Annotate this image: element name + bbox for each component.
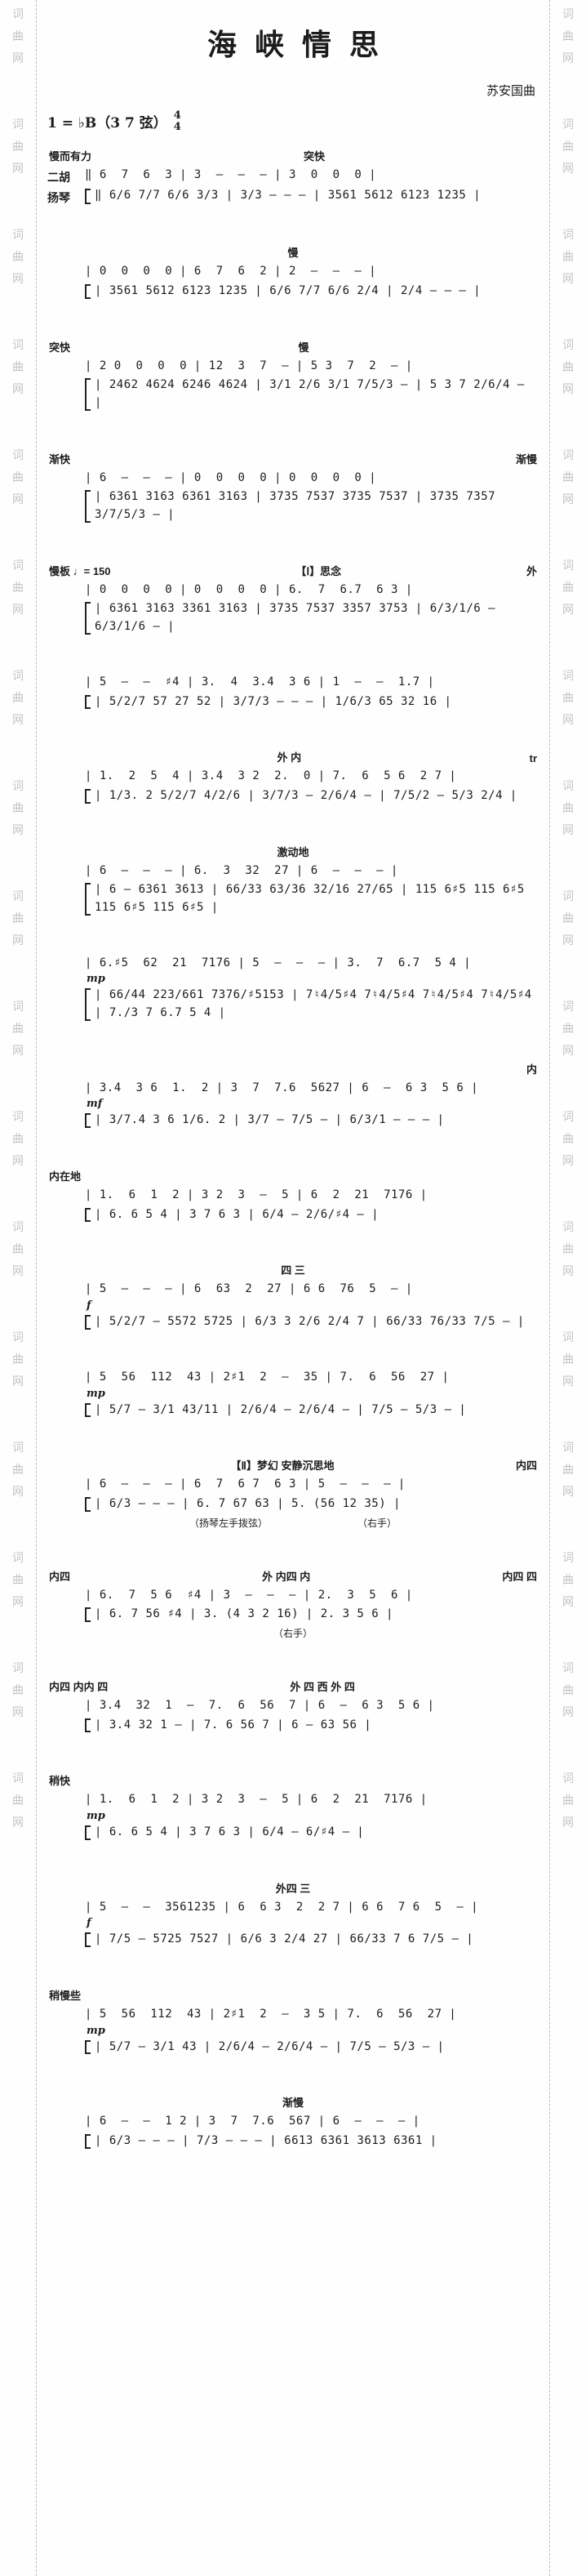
- erhu-part-label: [47, 862, 85, 865]
- yangqin-notes: ∣ 2462 4624 6246 4624 ∣ 3/1 2/6 3/1 7/5/…: [95, 377, 539, 412]
- yangqin-line: 扬琴‖ 6/6 7/7 6/6 3/3 ∣ 3/3 – – – ∣ 3561 5…: [47, 187, 539, 206]
- erhu-part-label: [47, 768, 85, 770]
- yangqin-notes-stack: ∣ 6. 6 5 4 ∣ 3 7 6 3 ∣ 6/4 – 2/6/♯4 – ∣: [95, 1206, 539, 1224]
- erhu-line: ∣ 6 – – – ∣ 0 0 0 0 ∣ 0 0 0 0 ∣: [47, 470, 539, 488]
- system-7: 外 内tr∣ 1. 2 5 4 ∣ 3.4 3 2 2. 0 ∣ 7. 6 5 …: [47, 748, 539, 804]
- erhu-part-label: [47, 1281, 85, 1283]
- erhu-notes: ∣ 5 56 112 43 ∣ 2♯1 2 – 3 5 ∣ 7. 6 56 27…: [85, 2006, 539, 2024]
- erhu-notes: ∣ 5 – – – ∣ 6 63 2 27 ∣ 6 6 76 5 – ∣: [85, 1281, 539, 1299]
- system-16: 内四 内内 四外 四 西 外 四∣ 3.4 32 1 – 7. 6 56 7 ∣…: [47, 1678, 539, 1734]
- yangqin-notes: ∣ 6 – 6361 3613 ∣ 66/33 63/36 32/16 27/6…: [95, 881, 539, 916]
- section-mark: 【Ⅰ】思念: [111, 563, 526, 578]
- tempo-mark: 慢而有力: [49, 148, 91, 163]
- yangqin-notes: ∣ 6361 3163 3361 3163 ∣ 3735 7537 3357 3…: [95, 600, 539, 635]
- system-17: 稍快∣ 1. 6 1 2 ∣ 3 2 3 – 5 ∣ 6 2 21 7176 ∣…: [47, 1772, 539, 1841]
- system-5: 慢板 ♩= 150【Ⅰ】思念外∣ 0 0 0 0 ∣ 0 0 0 0 ∣ 6. …: [47, 562, 539, 636]
- yangqin-part-label: [47, 1931, 85, 1933]
- music-systems: 慢而有力突快二胡‖ 6 7 6 3 ∣ 3 – – – ∣ 3 0 0 0 ∣扬…: [47, 147, 539, 2150]
- erhu-part-label: [47, 1369, 85, 1371]
- tempo-annotation-row: 外四 三: [47, 1879, 539, 1897]
- yangqin-part-label: [47, 693, 85, 696]
- page-title: 海峡情思: [47, 21, 539, 64]
- yangqin-bracket: [85, 1403, 91, 1418]
- yangqin-bracket: [85, 284, 91, 299]
- key-text: 1 = ♭B（3 7 弦）: [47, 111, 167, 131]
- system-4: 渐快渐慢∣ 6 – – – ∣ 0 0 0 0 ∣ 0 0 0 0 ∣∣ 636…: [47, 450, 539, 524]
- tempo-annotation-row: 渐快渐慢: [47, 450, 539, 468]
- tempo-annotation-row: 内在地: [47, 1167, 539, 1185]
- string-finger-mark: 外: [526, 563, 537, 578]
- yangqin-notes: ∣ 6. 6 5 4 ∣ 3 7 6 3 ∣ 6/4 – 2/6/♯4 – ∣: [95, 1206, 539, 1224]
- yangqin-line: ∣ 6. 7 56 ♯4 ∣ 3. (4 3 2 16) ∣ 2. 3 5 6 …: [47, 1606, 539, 1624]
- erhu-part-label: [47, 2006, 85, 2008]
- yangqin-notes: ∣ 6361 3163 6361 3163 ∣ 3735 7537 3735 7…: [95, 488, 539, 524]
- meter-denominator: 4: [174, 122, 181, 133]
- yangqin-part-label: [47, 488, 85, 491]
- tempo-annotation-row: 稍慢些: [47, 1986, 539, 2004]
- yangqin-part-label: [47, 787, 85, 790]
- tempo-annotation-row: 渐慢: [47, 2093, 539, 2111]
- erhu-notes: ∣ 1. 2 5 4 ∣ 3.4 3 2 2. 0 ∣ 7. 6 5 6 2 7…: [85, 768, 539, 786]
- dynamic-mark: mp: [87, 1810, 539, 1822]
- erhu-line: ∣ 5 56 112 43 ∣ 2♯1 2 – 3 5 ∣ 7. 6 56 27…: [47, 2006, 539, 2024]
- tempo-annotation-row: 四 三: [47, 1261, 539, 1279]
- string-finger-mark: 内: [526, 1061, 537, 1076]
- system-19: 稍慢些∣ 5 56 112 43 ∣ 2♯1 2 – 3 5 ∣ 7. 6 56…: [47, 1986, 539, 2056]
- tempo-mark: 内四: [49, 1568, 70, 1584]
- yangqin-line: ∣ 7/5 – 5725 7527 ∣ 6/6 3 2/4 27 ∣ 66/33…: [47, 1931, 539, 1949]
- erhu-part-label: [47, 470, 85, 472]
- yangqin-notes-stack: ∣ 3/7.4 3 6 1/6. 2 ∣ 3/7 – 7/5 – ∣ 6/3/1…: [95, 1112, 539, 1130]
- yangqin-line: ∣ 6 – 6361 3613 ∣ 66/33 63/36 32/16 27/6…: [47, 881, 539, 916]
- yangqin-notes-stack: ∣ 6/3 – – – ∣ 7/3 – – – ∣ 6613 6361 3613…: [95, 2133, 539, 2150]
- tempo-annotation-row: 慢: [47, 243, 539, 261]
- score-sheet: 海峡情思 苏安国曲 1 = ♭B（3 7 弦） 4 4 慢而有力突快二胡‖ 6 …: [47, 0, 539, 2188]
- tempo-mark: 内四 内内 四: [49, 1678, 108, 1694]
- string-finger-mark: 内四 四: [502, 1568, 537, 1584]
- erhu-part-label: [47, 674, 85, 676]
- erhu-notes: ∣ 1. 6 1 2 ∣ 3 2 3 – 5 ∣ 6 2 21 7176 ∣: [85, 1187, 539, 1205]
- yangqin-part-label: [47, 987, 85, 989]
- dynamic-mark: f: [87, 1917, 539, 1929]
- yangqin-part-label: [47, 1313, 85, 1316]
- erhu-notes: ∣ 5 56 112 43 ∣ 2♯1 2 – 35 ∣ 7. 6 56 27 …: [85, 1369, 539, 1387]
- system-20: 渐慢∣ 6 – – 1 2 ∣ 3 7 7.6 567 ∣ 6 – – – ∣∣…: [47, 2093, 539, 2150]
- erhu-line: ∣ 5 56 112 43 ∣ 2♯1 2 – 35 ∣ 7. 6 56 27 …: [47, 1369, 539, 1387]
- section-mark: 突快: [91, 148, 537, 163]
- time-signature: 4 4: [174, 110, 181, 132]
- yangqin-bracket: [85, 1497, 91, 1512]
- yangqin-bracket: [85, 1208, 91, 1223]
- performance-note: （右手）: [357, 1516, 397, 1530]
- yangqin-line: ∣ 2462 4624 6246 4624 ∣ 3/1 2/6 3/1 7/5/…: [47, 377, 539, 412]
- yangqin-part-label: [47, 1606, 85, 1608]
- yangqin-line: ∣ 6361 3163 3361 3163 ∣ 3735 7537 3357 3…: [47, 600, 539, 635]
- yangqin-bracket: [85, 189, 91, 204]
- yangqin-line: ∣ 1/3. 2 5/2/7 4/2/6 ∣ 3/7/3 – 2/6/4 – ∣…: [47, 787, 539, 805]
- yangqin-notes: ∣ 6. 6 5 4 ∣ 3 7 6 3 ∣ 6/4 – 6/♯4 – ∣: [95, 1824, 539, 1842]
- tempo-annotation-row: 突快慢: [47, 338, 539, 356]
- yangqin-notes-stack: ∣ 3561 5612 6123 1235 ∣ 6/6 7/7 6/6 2/4 …: [95, 283, 539, 301]
- yangqin-part-label: [47, 1717, 85, 1719]
- erhu-part-label: [47, 1476, 85, 1478]
- erhu-notes: ∣ 0 0 0 0 ∣ 0 0 0 0 ∣ 6. 7 6.7 6 3 ∣: [85, 582, 539, 599]
- yangqin-bracket: [85, 1607, 91, 1622]
- erhu-line: ∣ 0 0 0 0 ∣ 0 0 0 0 ∣ 6. 7 6.7 6 3 ∣: [47, 582, 539, 599]
- erhu-notes: ∣ 5 – – ♯4 ∣ 3. 4 3.4 3 6 ∣ 1 – – 1.7 ∣: [85, 674, 539, 692]
- yangqin-part-label: [47, 1402, 85, 1404]
- yangqin-bracket: [85, 789, 91, 804]
- yangqin-notes: ∣ 1/3. 2 5/2/7 4/2/6 ∣ 3/7/3 – 2/6/4 – ∣…: [95, 787, 539, 805]
- yangqin-notes-stack: ∣ 1/3. 2 5/2/7 4/2/6 ∣ 3/7/3 – 2/6/4 – ∣…: [95, 787, 539, 805]
- erhu-line: ∣ 3.4 3 6 1. 2 ∣ 3 7 7.6 5627 ∣ 6 – 6 3 …: [47, 1080, 539, 1098]
- yangqin-notes: ‖ 6/6 7/7 6/6 3/3 ∣ 3/3 – – – ∣ 3561 561…: [95, 187, 539, 205]
- erhu-part-label: [47, 358, 85, 360]
- erhu-notes: ∣ 6 – – – ∣ 6. 3 32 27 ∣ 6 – – – ∣: [85, 862, 539, 880]
- tempo-mark: 突快: [49, 339, 70, 354]
- tempo-mark: 渐快: [49, 451, 70, 466]
- yangqin-part-label: [47, 1206, 85, 1209]
- tempo-annotation-row: 慢而有力突快: [47, 147, 539, 165]
- yangqin-bracket: [85, 2040, 91, 2055]
- yangqin-notes-stack: ∣ 5/7 – 3/1 43/11 ∣ 2/6/4 – 2/6/4 – ∣ 7/…: [95, 1402, 539, 1419]
- yangqin-bracket: [85, 378, 91, 410]
- section-mark: 【Ⅱ】梦幻 安静沉思地: [49, 1457, 516, 1473]
- yangqin-line: ∣ 5/7 – 3/1 43/11 ∣ 2/6/4 – 2/6/4 – ∣ 7/…: [47, 1402, 539, 1419]
- system-15: 内四外 内四 内内四 四∣ 6. 7 5 6 ♯4 ∣ 3 – – – ∣ 2.…: [47, 1567, 539, 1640]
- watermark-left: 词 曲 网 词 曲 网 词 曲 网 词 曲 网 词 曲 网 词 曲 网 词 曲 …: [0, 0, 37, 2576]
- yangqin-notes-stack: ∣ 6/3 – – – ∣ 6. 7 67 63 ∣ 5. (56 12 35)…: [95, 1495, 539, 1513]
- yangqin-notes: ∣ 5/2/7 57 27 52 ∣ 3/7/3 – – – ∣ 1/6/3 6…: [95, 693, 539, 711]
- yangqin-bracket: [85, 1932, 91, 1947]
- yangqin-line: ∣ 6/3 – – – ∣ 6. 7 67 63 ∣ 5. (56 12 35)…: [47, 1495, 539, 1513]
- yangqin-notes: ∣ 7/5 – 5725 7527 ∣ 6/6 3 2/4 27 ∣ 66/33…: [95, 1931, 539, 1949]
- system-9: ∣ 6.♯5 62 21 7176 ∣ 5 – – – ∣ 3. 7 6.7 5…: [47, 955, 539, 1023]
- yangqin-notes-stack: ∣ 6361 3163 6361 3163 ∣ 3735 7537 3735 7…: [95, 488, 539, 524]
- yangqin-line: ∣ 3/7.4 3 6 1/6. 2 ∣ 3/7 – 7/5 – ∣ 6/3/1…: [47, 1112, 539, 1130]
- erhu-part-label: [47, 582, 85, 584]
- tempo-annotation-row: 内四 内内 四外 四 西 外 四: [47, 1678, 539, 1696]
- watermark-right: 词 曲 网 词 曲 网 词 曲 网 词 曲 网 词 曲 网 词 曲 网 词 曲 …: [549, 0, 586, 2576]
- composer-credit: 苏安国曲: [47, 82, 539, 99]
- system-13: ∣ 5 56 112 43 ∣ 2♯1 2 – 35 ∣ 7. 6 56 27 …: [47, 1369, 539, 1419]
- erhu-notes: ∣ 3.4 3 6 1. 2 ∣ 3 7 7.6 5627 ∣ 6 – 6 3 …: [85, 1080, 539, 1098]
- section-mark: 外 四 西 外 四: [108, 1678, 537, 1694]
- yangqin-notes-stack: ∣ 6 – 6361 3613 ∣ 66/33 63/36 32/16 27/6…: [95, 881, 539, 916]
- system-6: ∣ 5 – – ♯4 ∣ 3. 4 3.4 3 6 ∣ 1 – – 1.7 ∣∣…: [47, 674, 539, 711]
- performance-note-row: （扬琴左手拨弦）（右手）: [47, 1516, 539, 1530]
- yangqin-part-label: [47, 881, 85, 884]
- erhu-notes: ∣ 3.4 32 1 – 7. 6 56 7 ∣ 6 – 6 3 5 6 ∣: [85, 1697, 539, 1715]
- yangqin-notes-stack: ∣ 5/2/7 57 27 52 ∣ 3/7/3 – – – ∣ 1/6/3 6…: [95, 693, 539, 711]
- yangqin-line: ∣ 3561 5612 6123 1235 ∣ 6/6 7/7 6/6 2/4 …: [47, 283, 539, 301]
- tempo-annotation-row: 慢板 ♩= 150【Ⅰ】思念外: [47, 562, 539, 580]
- yangqin-bracket: [85, 1718, 91, 1733]
- yangqin-notes-stack: ∣ 6. 7 56 ♯4 ∣ 3. (4 3 2 16) ∣ 2. 3 5 6 …: [95, 1606, 539, 1624]
- yangqin-notes: ∣ 6/3 – – – ∣ 6. 7 67 63 ∣ 5. (56 12 35)…: [95, 1495, 539, 1513]
- section-mark: 渐慢: [49, 2094, 537, 2110]
- yangqin-line: ∣ 6/3 – – – ∣ 7/3 – – – ∣ 6613 6361 3613…: [47, 2133, 539, 2150]
- section-mark: 慢: [49, 244, 537, 260]
- string-finger-mark: 内四: [516, 1457, 537, 1473]
- yangqin-line: ∣ 6361 3163 6361 3163 ∣ 3735 7537 3735 7…: [47, 488, 539, 524]
- tempo-annotation-row: 稍快: [47, 1772, 539, 1789]
- erhu-line: ∣ 1. 2 5 4 ∣ 3.4 3 2 2. 0 ∣ 7. 6 5 6 2 7…: [47, 768, 539, 786]
- dynamic-mark: mp: [87, 2025, 539, 2037]
- yangqin-part-label: [47, 377, 85, 379]
- performance-note: （右手）: [273, 1626, 313, 1640]
- system-18: 外四 三∣ 5 – – 3561235 ∣ 6 6 3 2 2 7 ∣ 6 6 …: [47, 1879, 539, 1949]
- yangqin-bracket: [85, 1315, 91, 1330]
- tempo-annotation-row: 内: [47, 1060, 539, 1078]
- yangqin-notes: ∣ 5/7 – 3/1 43/11 ∣ 2/6/4 – 2/6/4 – ∣ 7/…: [95, 1402, 539, 1419]
- erhu-notes: ∣ 6 – – – ∣ 0 0 0 0 ∣ 0 0 0 0 ∣: [85, 470, 539, 488]
- yangqin-line: ∣ 5/2/7 – 5572 5725 ∣ 6/3 3 2/6 2/4 7 ∣ …: [47, 1313, 539, 1331]
- section-mark: 外 内四 内: [70, 1568, 502, 1584]
- erhu-line: ∣ 5 – – – ∣ 6 63 2 27 ∣ 6 6 76 5 – ∣: [47, 1281, 539, 1299]
- yangqin-part-label: [47, 1112, 85, 1114]
- performance-note: （扬琴左手拨弦）: [189, 1516, 268, 1530]
- yangqin-bracket: [85, 695, 91, 710]
- yangqin-line: ∣ 6. 6 5 4 ∣ 3 7 6 3 ∣ 6/4 – 2/6/♯4 – ∣: [47, 1206, 539, 1224]
- yangqin-part-label: [47, 1824, 85, 1826]
- erhu-part-label: [47, 1080, 85, 1082]
- yangqin-notes-stack: ∣ 2462 4624 6246 4624 ∣ 3/1 2/6 3/1 7/5/…: [95, 377, 539, 412]
- yangqin-notes-stack: ∣ 5/7 – 3/1 43 ∣ 2/6/4 – 2/6/4 – ∣ 7/5 –…: [95, 2039, 539, 2057]
- erhu-line: ∣ 6 – – – ∣ 6 7 6 7 6 3 ∣ 5 – – – ∣: [47, 1476, 539, 1494]
- erhu-part-label: [47, 955, 85, 957]
- yangqin-part-label: [47, 600, 85, 603]
- erhu-notes: ∣ 6. 7 5 6 ♯4 ∣ 3 – – – ∣ 2. 3 5 6 ∣: [85, 1587, 539, 1605]
- system-8: 激动地∣ 6 – – – ∣ 6. 3 32 27 ∣ 6 – – – ∣∣ 6…: [47, 843, 539, 917]
- erhu-notes: ∣ 2 0 0 0 0 ∣ 12 3 7 – ∣ 5 3 7 2 – ∣: [85, 358, 539, 376]
- erhu-line: ∣ 5 – – 3561235 ∣ 6 6 3 2 2 7 ∣ 6 6 7 6 …: [47, 1899, 539, 1917]
- yangqin-line: ∣ 6. 6 5 4 ∣ 3 7 6 3 ∣ 6/4 – 6/♯4 – ∣: [47, 1824, 539, 1842]
- erhu-line: ∣ 1. 6 1 2 ∣ 3 2 3 – 5 ∣ 6 2 21 7176 ∣: [47, 1791, 539, 1809]
- erhu-part-label: [47, 1697, 85, 1700]
- yangqin-notes-stack: ∣ 5/2/7 – 5572 5725 ∣ 6/3 3 2/6 2/4 7 ∣ …: [95, 1313, 539, 1331]
- section-mark: 慢: [70, 339, 537, 354]
- meter-numerator: 4: [174, 110, 181, 122]
- tempo-mark: 稍慢些: [49, 1987, 81, 2003]
- tempo-annotation-row: 内四外 内四 内内四 四: [47, 1567, 539, 1585]
- yangqin-bracket: [85, 490, 91, 522]
- system-2: 慢∣ 0 0 0 0 ∣ 6 7 6 2 ∣ 2 – – – ∣∣ 3561 5…: [47, 243, 539, 300]
- erhu-notes: ∣ 0 0 0 0 ∣ 6 7 6 2 ∣ 2 – – – ∣: [85, 263, 539, 281]
- erhu-line: ∣ 6.♯5 62 21 7176 ∣ 5 – – – ∣ 3. 7 6.7 5…: [47, 955, 539, 973]
- tempo-annotation-row: 【Ⅱ】梦幻 安静沉思地内四: [47, 1456, 539, 1474]
- erhu-notes: ∣ 6 – – 1 2 ∣ 3 7 7.6 567 ∣ 6 – – – ∣: [85, 2113, 539, 2131]
- tempo-mark: 内在地: [49, 1168, 81, 1183]
- yangqin-bracket: [85, 988, 91, 1020]
- erhu-line: ∣ 3.4 32 1 – 7. 6 56 7 ∣ 6 – 6 3 5 6 ∣: [47, 1697, 539, 1715]
- system-1: 慢而有力突快二胡‖ 6 7 6 3 ∣ 3 – – – ∣ 3 0 0 0 ∣扬…: [47, 147, 539, 206]
- erhu-notes: ∣ 6.♯5 62 21 7176 ∣ 5 – – – ∣ 3. 7 6.7 5…: [85, 955, 539, 973]
- yangqin-notes: ∣ 3561 5612 6123 1235 ∣ 6/6 7/7 6/6 2/4 …: [95, 283, 539, 301]
- erhu-part-label: [47, 2113, 85, 2115]
- yangqin-bracket: [85, 1113, 91, 1128]
- tempo-annotation-row: 激动地: [47, 843, 539, 861]
- tempo-mark: 慢板 ♩= 150: [49, 563, 111, 578]
- section-mark: 外 内: [49, 749, 530, 764]
- section-mark: 四 三: [49, 1262, 537, 1277]
- yangqin-part-label: [47, 1495, 85, 1498]
- erhu-notes: ∣ 5 – – 3561235 ∣ 6 6 3 2 2 7 ∣ 6 6 7 6 …: [85, 1899, 539, 1917]
- yangqin-notes: ∣ 5/2/7 – 5572 5725 ∣ 6/3 3 2/6 2/4 7 ∣ …: [95, 1313, 539, 1331]
- yangqin-notes: ∣ 3/7.4 3 6 1/6. 2 ∣ 3/7 – 7/5 – ∣ 6/3/1…: [95, 1112, 539, 1130]
- erhu-part-label: [47, 263, 85, 265]
- erhu-line: ∣ 6 – – – ∣ 6. 3 32 27 ∣ 6 – – – ∣: [47, 862, 539, 880]
- yangqin-bracket: [85, 602, 91, 634]
- erhu-line: 二胡‖ 6 7 6 3 ∣ 3 – – – ∣ 3 0 0 0 ∣: [47, 167, 539, 185]
- yangqin-notes-stack: ∣ 6361 3163 3361 3163 ∣ 3735 7537 3357 3…: [95, 600, 539, 635]
- yangqin-notes: ∣ 3.4 32 1 – ∣ 7. 6 56 7 ∣ 6 – 63 56 ∣: [95, 1717, 539, 1735]
- section-mark: 激动地: [49, 844, 537, 859]
- string-finger-mark: 渐慢: [516, 451, 537, 466]
- yangqin-notes-stack: ∣ 66/44 223/661 7376/♯5153 ∣ 7♮4/5♯4 7♮4…: [95, 987, 539, 1022]
- erhu-part-label: [47, 1791, 85, 1794]
- erhu-line: ∣ 5 – – ♯4 ∣ 3. 4 3.4 3 6 ∣ 1 – – 1.7 ∣: [47, 674, 539, 692]
- key-signature: 1 = ♭B（3 7 弦） 4 4: [47, 110, 539, 132]
- system-14: 【Ⅱ】梦幻 安静沉思地内四∣ 6 – – – ∣ 6 7 6 7 6 3 ∣ 5…: [47, 1456, 539, 1529]
- yangqin-part-label: [47, 2039, 85, 2041]
- system-12: 四 三∣ 5 – – – ∣ 6 63 2 27 ∣ 6 6 76 5 – ∣f…: [47, 1261, 539, 1330]
- yangqin-part-label: [47, 2133, 85, 2135]
- dynamic-mark: f: [87, 1299, 539, 1312]
- system-10: 内∣ 3.4 3 6 1. 2 ∣ 3 7 7.6 5627 ∣ 6 – 6 3…: [47, 1060, 539, 1130]
- yangqin-notes: ∣ 5/7 – 3/1 43 ∣ 2/6/4 – 2/6/4 – ∣ 7/5 –…: [95, 2039, 539, 2057]
- tempo-annotation-row: 外 内tr: [47, 748, 539, 766]
- yangqin-line: ∣ 66/44 223/661 7376/♯5153 ∣ 7♮4/5♯4 7♮4…: [47, 987, 539, 1022]
- yangqin-notes: ∣ 66/44 223/661 7376/♯5153 ∣ 7♮4/5♯4 7♮4…: [95, 987, 539, 1022]
- yangqin-notes-stack: ∣ 3.4 32 1 – ∣ 7. 6 56 7 ∣ 6 – 63 56 ∣: [95, 1717, 539, 1735]
- erhu-part-label: [47, 1187, 85, 1189]
- yangqin-bracket: [85, 883, 91, 915]
- erhu-notes: ‖ 6 7 6 3 ∣ 3 – – – ∣ 3 0 0 0 ∣: [85, 167, 539, 185]
- erhu-part-label: [47, 1587, 85, 1589]
- erhu-notes: ∣ 6 – – – ∣ 6 7 6 7 6 3 ∣ 5 – – – ∣: [85, 1476, 539, 1494]
- yangqin-notes-stack: ∣ 6. 6 5 4 ∣ 3 7 6 3 ∣ 6/4 – 6/♯4 – ∣: [95, 1824, 539, 1842]
- section-mark: 外四 三: [49, 1880, 537, 1896]
- yangqin-line: ∣ 3.4 32 1 – ∣ 7. 6 56 7 ∣ 6 – 63 56 ∣: [47, 1717, 539, 1735]
- tempo-mark: 稍快: [49, 1772, 70, 1788]
- yangqin-notes: ∣ 6. 7 56 ♯4 ∣ 3. (4 3 2 16) ∣ 2. 3 5 6 …: [95, 1606, 539, 1624]
- yangqin-bracket: [85, 1825, 91, 1840]
- dynamic-mark: mp: [87, 1388, 539, 1400]
- yangqin-line: ∣ 5/7 – 3/1 43 ∣ 2/6/4 – 2/6/4 – ∣ 7/5 –…: [47, 2039, 539, 2057]
- performance-note-row: （右手）: [47, 1626, 539, 1640]
- erhu-line: ∣ 0 0 0 0 ∣ 6 7 6 2 ∣ 2 – – – ∣: [47, 263, 539, 281]
- erhu-notes: ∣ 1. 6 1 2 ∣ 3 2 3 – 5 ∣ 6 2 21 7176 ∣: [85, 1791, 539, 1809]
- erhu-line: ∣ 1. 6 1 2 ∣ 3 2 3 – 5 ∣ 6 2 21 7176 ∣: [47, 1187, 539, 1205]
- system-3: 突快慢∣ 2 0 0 0 0 ∣ 12 3 7 – ∣ 5 3 7 2 – ∣∣…: [47, 338, 539, 412]
- erhu-line: ∣ 6. 7 5 6 ♯4 ∣ 3 – – – ∣ 2. 3 5 6 ∣: [47, 1587, 539, 1605]
- yangqin-notes-stack: ∣ 7/5 – 5725 7527 ∣ 6/6 3 2/4 27 ∣ 66/33…: [95, 1931, 539, 1949]
- yangqin-bracket: [85, 2134, 91, 2149]
- yangqin-part-label: [47, 283, 85, 285]
- string-finger-mark: tr: [530, 752, 537, 764]
- erhu-line: ∣ 6 – – 1 2 ∣ 3 7 7.6 567 ∣ 6 – – – ∣: [47, 2113, 539, 2131]
- dynamic-mark: mp: [87, 973, 539, 985]
- yangqin-part-label: 扬琴: [47, 187, 85, 206]
- erhu-line: ∣ 2 0 0 0 0 ∣ 12 3 7 – ∣ 5 3 7 2 – ∣: [47, 358, 539, 376]
- yangqin-line: ∣ 5/2/7 57 27 52 ∣ 3/7/3 – – – ∣ 1/6/3 6…: [47, 693, 539, 711]
- erhu-part-label: 二胡: [47, 167, 85, 185]
- dynamic-mark: mf: [87, 1098, 539, 1110]
- yangqin-notes-stack: ‖ 6/6 7/7 6/6 3/3 ∣ 3/3 – – – ∣ 3561 561…: [95, 187, 539, 205]
- yangqin-notes: ∣ 6/3 – – – ∣ 7/3 – – – ∣ 6613 6361 3613…: [95, 2133, 539, 2150]
- erhu-part-label: [47, 1899, 85, 1901]
- system-11: 内在地∣ 1. 6 1 2 ∣ 3 2 3 – 5 ∣ 6 2 21 7176 …: [47, 1167, 539, 1223]
